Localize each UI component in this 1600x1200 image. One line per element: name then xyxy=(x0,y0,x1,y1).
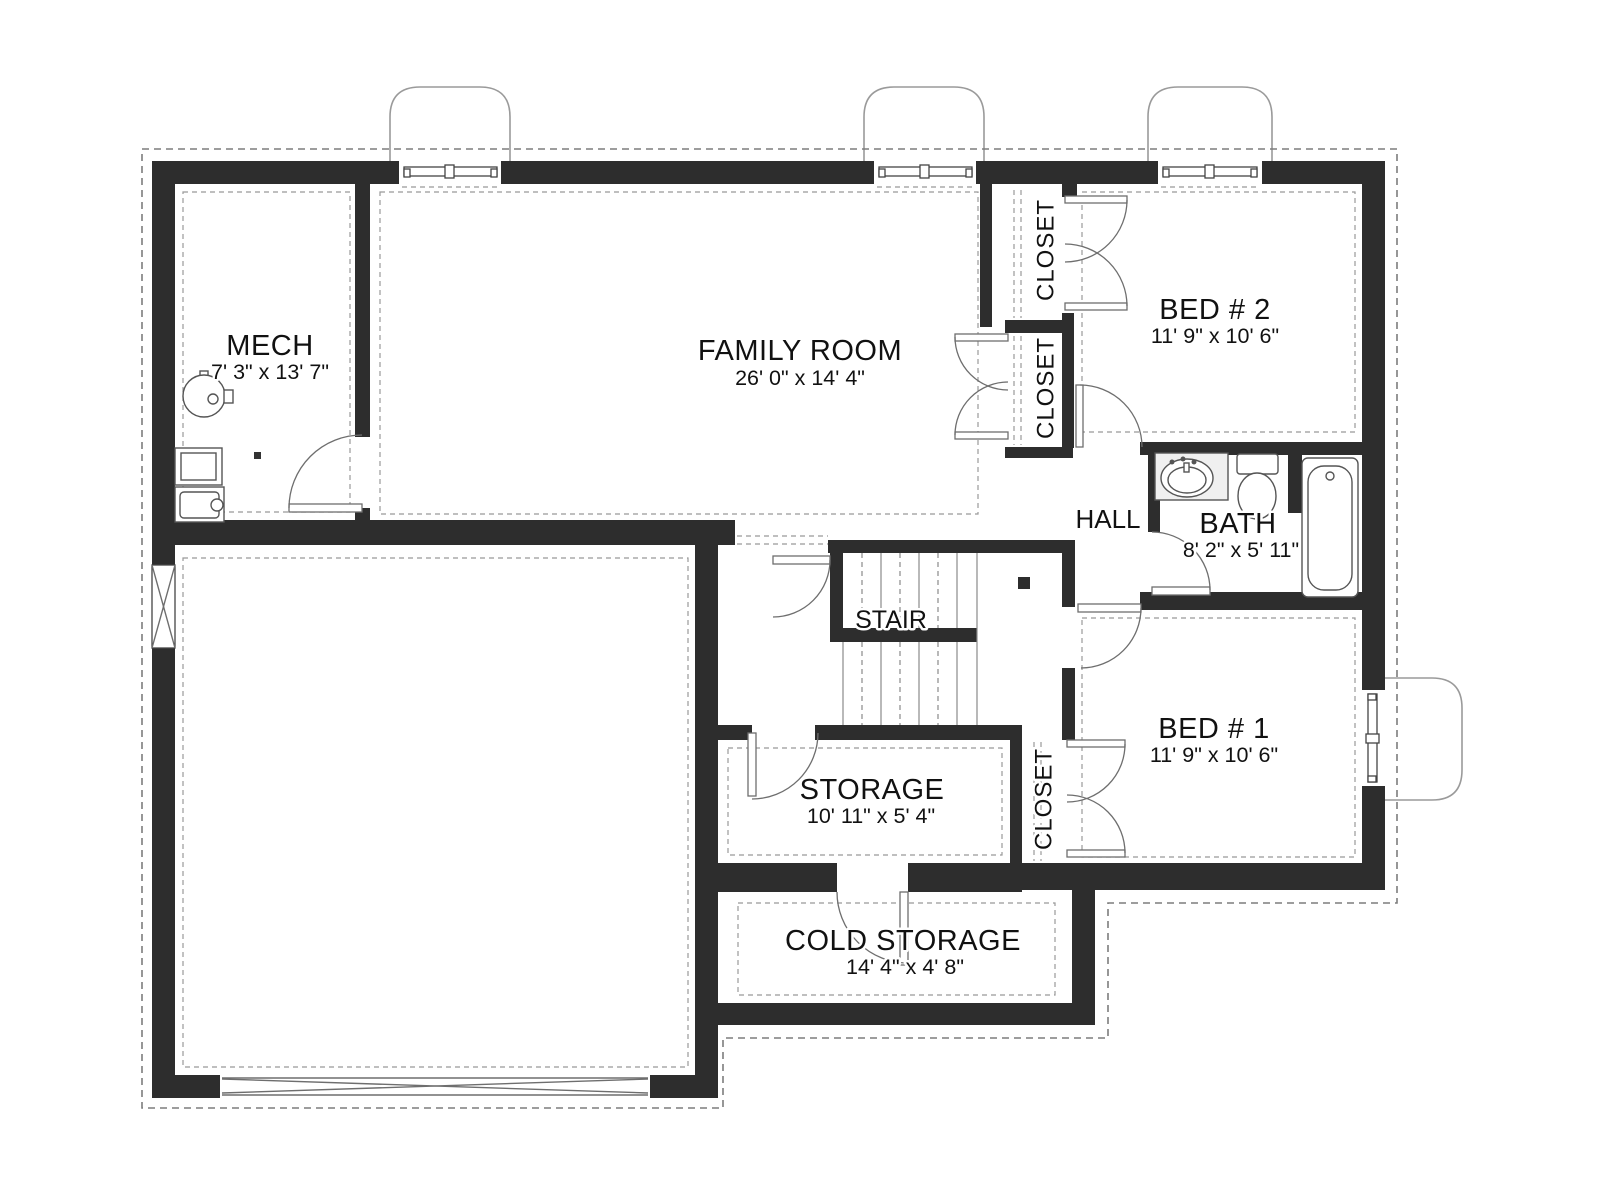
wall xyxy=(152,161,175,545)
wall xyxy=(828,540,1062,553)
label-mech: MECH xyxy=(226,330,313,362)
wall xyxy=(1018,577,1030,589)
window-well-icon xyxy=(1383,678,1462,800)
dims-mech: 7' 3" x 13' 7" xyxy=(211,360,329,384)
dims-bath: 8' 2" x 5' 11" xyxy=(1183,538,1299,562)
dims-bed1: 11' 9" x 10' 6" xyxy=(1150,743,1278,767)
label-bed1: BED # 1 xyxy=(1158,713,1270,745)
door-stair xyxy=(773,556,830,617)
window-icon xyxy=(1362,690,1385,786)
label-bath: BATH xyxy=(1199,508,1276,540)
vanity-sink-icon xyxy=(1155,453,1228,500)
dims-bed2: 11' 9" x 10' 6" xyxy=(1151,324,1279,348)
wall xyxy=(695,1003,1095,1025)
dims-storage: 10' 11" x 5' 4" xyxy=(807,804,935,828)
wall xyxy=(695,863,837,892)
label-closet-bed1: CLOSET xyxy=(1031,748,1058,850)
wall xyxy=(152,161,399,184)
wall xyxy=(830,553,843,628)
wall xyxy=(152,520,735,545)
door-bed2 xyxy=(1076,385,1142,447)
wall xyxy=(355,184,370,437)
wall xyxy=(718,725,752,740)
window-icon xyxy=(1158,161,1262,187)
window-well-icon xyxy=(864,87,984,163)
wall xyxy=(1362,161,1385,690)
closet-doors-bed1 xyxy=(1067,740,1125,857)
window-icon xyxy=(399,161,501,187)
window-well-icon xyxy=(390,87,510,163)
wall xyxy=(1005,320,1062,333)
wall xyxy=(1062,668,1075,740)
wall xyxy=(501,161,874,184)
floor-plan: MECH 7' 3" x 13' 7" FAMILY ROOM 26' 0" x… xyxy=(0,0,1600,1200)
label-storage: STORAGE xyxy=(800,774,945,806)
foundation-vent-icon xyxy=(152,565,175,648)
wall xyxy=(976,161,1158,184)
closet-doors-bed2 xyxy=(1065,196,1127,310)
fixtures xyxy=(175,371,1358,597)
wall xyxy=(1072,890,1095,1025)
dims-cold-storage: 14' 4" x 4' 8" xyxy=(846,955,964,979)
closet-doors-family xyxy=(955,334,1008,439)
wall xyxy=(1005,447,1073,458)
wall xyxy=(152,1075,220,1098)
wall xyxy=(1288,445,1302,513)
washer-icon xyxy=(175,448,222,485)
floor-plan-drawing: MECH 7' 3" x 13' 7" FAMILY ROOM 26' 0" x… xyxy=(0,0,1600,1200)
wall xyxy=(1022,863,1385,890)
label-bed2: BED # 2 xyxy=(1159,294,1271,326)
garage-door-icon xyxy=(220,1075,650,1098)
label-family-room: FAMILY ROOM xyxy=(698,335,902,367)
wall xyxy=(1010,738,1022,863)
label-closet-bed2: CLOSET xyxy=(1033,199,1060,301)
floor-drain-icon xyxy=(254,452,261,459)
door-bed1 xyxy=(1078,604,1141,668)
wall xyxy=(1062,184,1077,197)
wall xyxy=(1062,313,1074,448)
label-cold-storage: COLD STORAGE xyxy=(785,925,1021,957)
label-closet-family: CLOSET xyxy=(1033,337,1060,439)
room-labels: MECH 7' 3" x 13' 7" FAMILY ROOM 26' 0" x… xyxy=(211,199,1299,979)
door-mech xyxy=(289,435,362,512)
window-well-icon xyxy=(1148,87,1272,163)
label-stair: STAIR xyxy=(855,606,927,634)
dryer-icon xyxy=(175,487,224,522)
wall xyxy=(908,863,1022,892)
wall xyxy=(1062,540,1075,607)
wall xyxy=(815,725,1022,740)
dims-family-room: 26' 0" x 14' 4" xyxy=(735,366,865,390)
bathtub-icon xyxy=(1302,458,1358,597)
foundation-dashed-boundary xyxy=(142,149,1397,1108)
wall xyxy=(980,184,992,327)
window-icon xyxy=(874,161,976,187)
label-hall: HALL xyxy=(1075,504,1140,534)
